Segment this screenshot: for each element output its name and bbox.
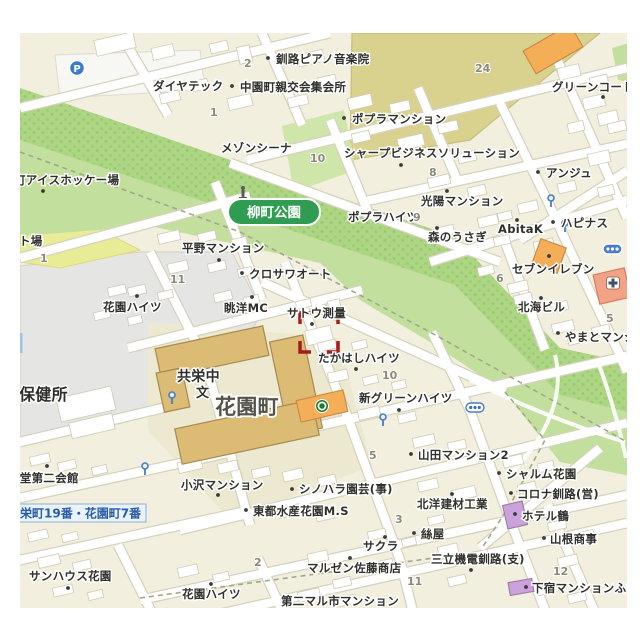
block-number: 1 xyxy=(210,106,218,119)
map-label: 下宿マンションふれ xyxy=(532,581,638,595)
map-label: 森のうさぎ xyxy=(428,230,487,244)
map-label: 共栄中 xyxy=(177,368,220,385)
map-label: メゾンシーナ xyxy=(221,141,292,155)
traffic-light-dot xyxy=(611,247,614,250)
map-label: 花園ハイツ xyxy=(103,300,162,314)
traffic-light-dot xyxy=(606,247,609,250)
map-label: 山田マンション2 xyxy=(418,448,509,462)
convenience-store-icon xyxy=(316,400,329,413)
poi-dot xyxy=(601,95,605,99)
map-label: 絲屋 xyxy=(421,527,445,541)
block-number: 11 xyxy=(170,273,185,286)
poi-dot xyxy=(240,271,244,275)
map-label: シャルム花園 xyxy=(506,467,577,481)
traffic-light-dot xyxy=(473,406,476,409)
map-label: AbitaK xyxy=(498,222,544,236)
map-label: 眺洋MC xyxy=(224,301,268,315)
parking-icon-letter: P xyxy=(73,64,80,75)
block-number: 8 xyxy=(429,166,437,179)
map-label: グリーンコート xyxy=(552,80,634,94)
map-label: シャープビジネスソリューション xyxy=(344,146,520,160)
traffic-light-dot xyxy=(615,247,618,250)
block-number: 10 xyxy=(310,152,326,165)
poi-dot xyxy=(524,585,528,589)
poi-dot xyxy=(216,493,220,497)
traffic-light-dot xyxy=(478,406,481,409)
map-label: 中園町親交会集会所 xyxy=(240,80,346,94)
poi-dot xyxy=(66,586,70,590)
block-number: 2 xyxy=(254,556,262,569)
poi-dot xyxy=(542,536,546,540)
map-label: ハピナス xyxy=(561,216,608,230)
poi-dot xyxy=(513,512,517,516)
map-label: ダイヤテック xyxy=(153,79,223,93)
block-number: 3 xyxy=(395,513,403,526)
poi-dot xyxy=(445,189,449,193)
map-label: シノハラ園芸(事) xyxy=(299,482,393,496)
poi-dot xyxy=(354,367,358,371)
map-label: コロナ釧路(営) xyxy=(517,487,599,501)
map-label: サクラ xyxy=(363,539,398,553)
poi-dot xyxy=(342,116,346,120)
poi-dot xyxy=(509,491,513,495)
map-label: マルゼン佐藤商店 xyxy=(307,561,402,575)
poi-dot xyxy=(217,258,221,262)
block-number: 1 xyxy=(40,252,48,265)
map-label: 花園町 xyxy=(215,395,279,419)
poi-dot xyxy=(348,556,352,560)
block-number: 10 xyxy=(382,369,398,382)
poi-dot xyxy=(250,295,254,299)
poi-dot xyxy=(399,163,403,167)
poi-dot xyxy=(412,531,416,535)
poi-dot xyxy=(45,464,49,468)
map-edge-mark xyxy=(20,333,23,353)
map-label: 北洋建材工業 xyxy=(417,497,488,511)
block-number: 11 xyxy=(407,575,422,588)
map-label: サトウ測量 xyxy=(287,306,346,320)
poi-dot xyxy=(551,220,555,224)
poi-dot xyxy=(409,452,413,456)
map-label: アンジュ xyxy=(546,166,592,180)
map-screenshot: P ダイヤテック釧路ピアノ音楽院中園町親交会集会所メゾンシーナポプラマンションシ… xyxy=(0,0,640,639)
map-label: クロサワオート xyxy=(249,267,332,281)
map-label: 山根商事 xyxy=(550,532,597,546)
block-number: 12 xyxy=(553,565,568,578)
map-label: 平野マンション xyxy=(182,241,265,255)
poi-dot xyxy=(41,189,45,193)
poi-dot xyxy=(547,254,551,258)
map-label: 保健所 xyxy=(18,385,68,404)
map-label: 三立機電釧路(支) xyxy=(431,552,525,566)
poi-dot xyxy=(135,294,139,298)
block-number: 24 xyxy=(475,62,491,75)
poi-dot xyxy=(556,331,560,335)
traffic-light-dot xyxy=(469,406,472,409)
map-label: セブンイレブン xyxy=(512,262,595,276)
map-label: 光陽マンション xyxy=(420,194,504,208)
map-label: ト場 xyxy=(19,234,43,248)
block-number: 5 xyxy=(369,449,377,462)
block-number: 9 xyxy=(413,211,421,224)
map-label: ホテル鶴 xyxy=(522,509,569,523)
block-number: 5 xyxy=(606,312,614,325)
map-label: 新グリーンハイツ xyxy=(359,391,453,405)
block-number: 6 xyxy=(496,272,504,285)
poi-dot xyxy=(230,84,234,88)
block-number: 2 xyxy=(244,57,252,70)
map-label: 花園ハイツ xyxy=(182,587,241,601)
map-label: 町アイスホッケー場 xyxy=(14,173,119,187)
hospital-icon xyxy=(607,277,620,289)
poi-dot xyxy=(310,322,314,326)
park-name-label: 柳町公園 xyxy=(247,204,301,221)
poi-dot xyxy=(469,568,473,572)
map-label: たかはしハイツ xyxy=(318,351,400,365)
poi-dot xyxy=(497,471,501,475)
poi-dot xyxy=(209,582,213,586)
map-canvas[interactable]: P ダイヤテック釧路ピアノ音楽院中園町親交会集会所メゾンシーナポプラマンションシ… xyxy=(0,0,640,639)
poi-dot xyxy=(397,408,401,412)
map-label: ポプラマンション xyxy=(352,112,446,126)
map-label: 釧路ピアノ音楽院 xyxy=(275,52,370,66)
map-label: 文 xyxy=(196,385,210,401)
poi-dot xyxy=(266,56,270,60)
map-label: 第二マル市マンション xyxy=(281,594,399,608)
poi-dot xyxy=(290,487,294,491)
map-label: 小沢マンション xyxy=(180,478,264,492)
poi-dot xyxy=(536,170,540,174)
poi-dot xyxy=(244,508,248,512)
map-label: 北海ビル xyxy=(518,300,565,314)
map-label: 東都水産花園M.S xyxy=(253,504,349,518)
map-label: サンハウス花園 xyxy=(29,569,112,583)
map-label: ポプラハイツ xyxy=(348,210,418,224)
bus-stop-label: 栄町19番・花園町7番 xyxy=(19,506,142,521)
poi-dot xyxy=(450,492,454,496)
